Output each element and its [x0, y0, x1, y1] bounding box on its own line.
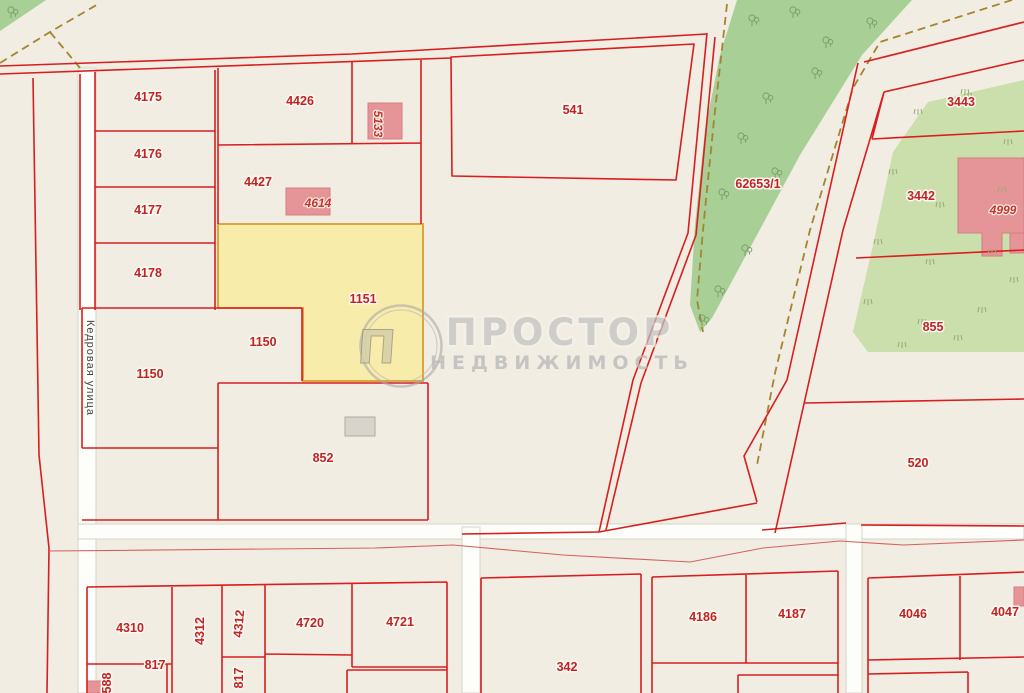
road-vertical-mid [462, 527, 480, 693]
parcel-label: 4312 [193, 617, 207, 645]
watermark-title: ПРОСТОР [446, 311, 675, 354]
parcel-label: 4310 [116, 621, 144, 635]
map-canvas: П ПРОСТОР НЕДВИЖИМОСТЬ Кедровая улица 41… [0, 0, 1024, 693]
parcel-label: 1151 [349, 292, 376, 306]
parcel-label: 4187 [778, 607, 806, 621]
parcel-label: 520 [908, 456, 929, 470]
building-4047 [1014, 587, 1024, 606]
parcel-label: 817 [232, 668, 246, 689]
parcel-label: 4047 [991, 605, 1019, 619]
parcel-label: 3442 [907, 189, 935, 203]
parcel-label: 817 [145, 658, 166, 672]
parcel-label: 852 [313, 451, 334, 465]
parcel-label: 588 [100, 673, 114, 693]
parcel-label: 541 [563, 103, 584, 117]
parcel-label: 4178 [134, 266, 162, 280]
parcel-label: 4426 [286, 94, 314, 108]
cadastral-map-view[interactable]: П ПРОСТОР НЕДВИЖИМОСТЬ Кедровая улица 41… [0, 0, 1024, 693]
parcel-label: 4312 [231, 609, 247, 638]
watermark-subtitle: НЕДВИЖИМОСТЬ [430, 352, 694, 374]
parcel-label: 1150 [136, 367, 163, 381]
parcel-label: 4176 [134, 147, 162, 161]
street-name-label: Кедровая улица [84, 320, 96, 416]
parcel-label: 4186 [689, 610, 717, 624]
parcel-label: 4175 [134, 90, 162, 104]
building-label: 4614 [304, 196, 332, 210]
parcel-label: 4177 [134, 203, 162, 217]
road-horizontal [78, 524, 1024, 539]
building-label: 5133 [371, 111, 385, 138]
parcel-label: 62653/1 [735, 177, 780, 191]
parcel-label: 342 [557, 660, 578, 674]
parcel-label: 4427 [244, 175, 272, 189]
parcel-label: 4721 [386, 615, 414, 629]
road-vertical-right [846, 524, 862, 693]
building-label: 4999 [989, 203, 1017, 217]
watermark-logo-letter: П [356, 320, 398, 374]
parcel-label: 3443 [947, 95, 975, 109]
building-gray-852 [345, 417, 375, 436]
parcel-label: 1150 [249, 335, 276, 349]
parcel-label: 855 [923, 320, 944, 334]
parcel-label: 4720 [296, 616, 324, 630]
parcel-label: 4046 [899, 607, 927, 621]
